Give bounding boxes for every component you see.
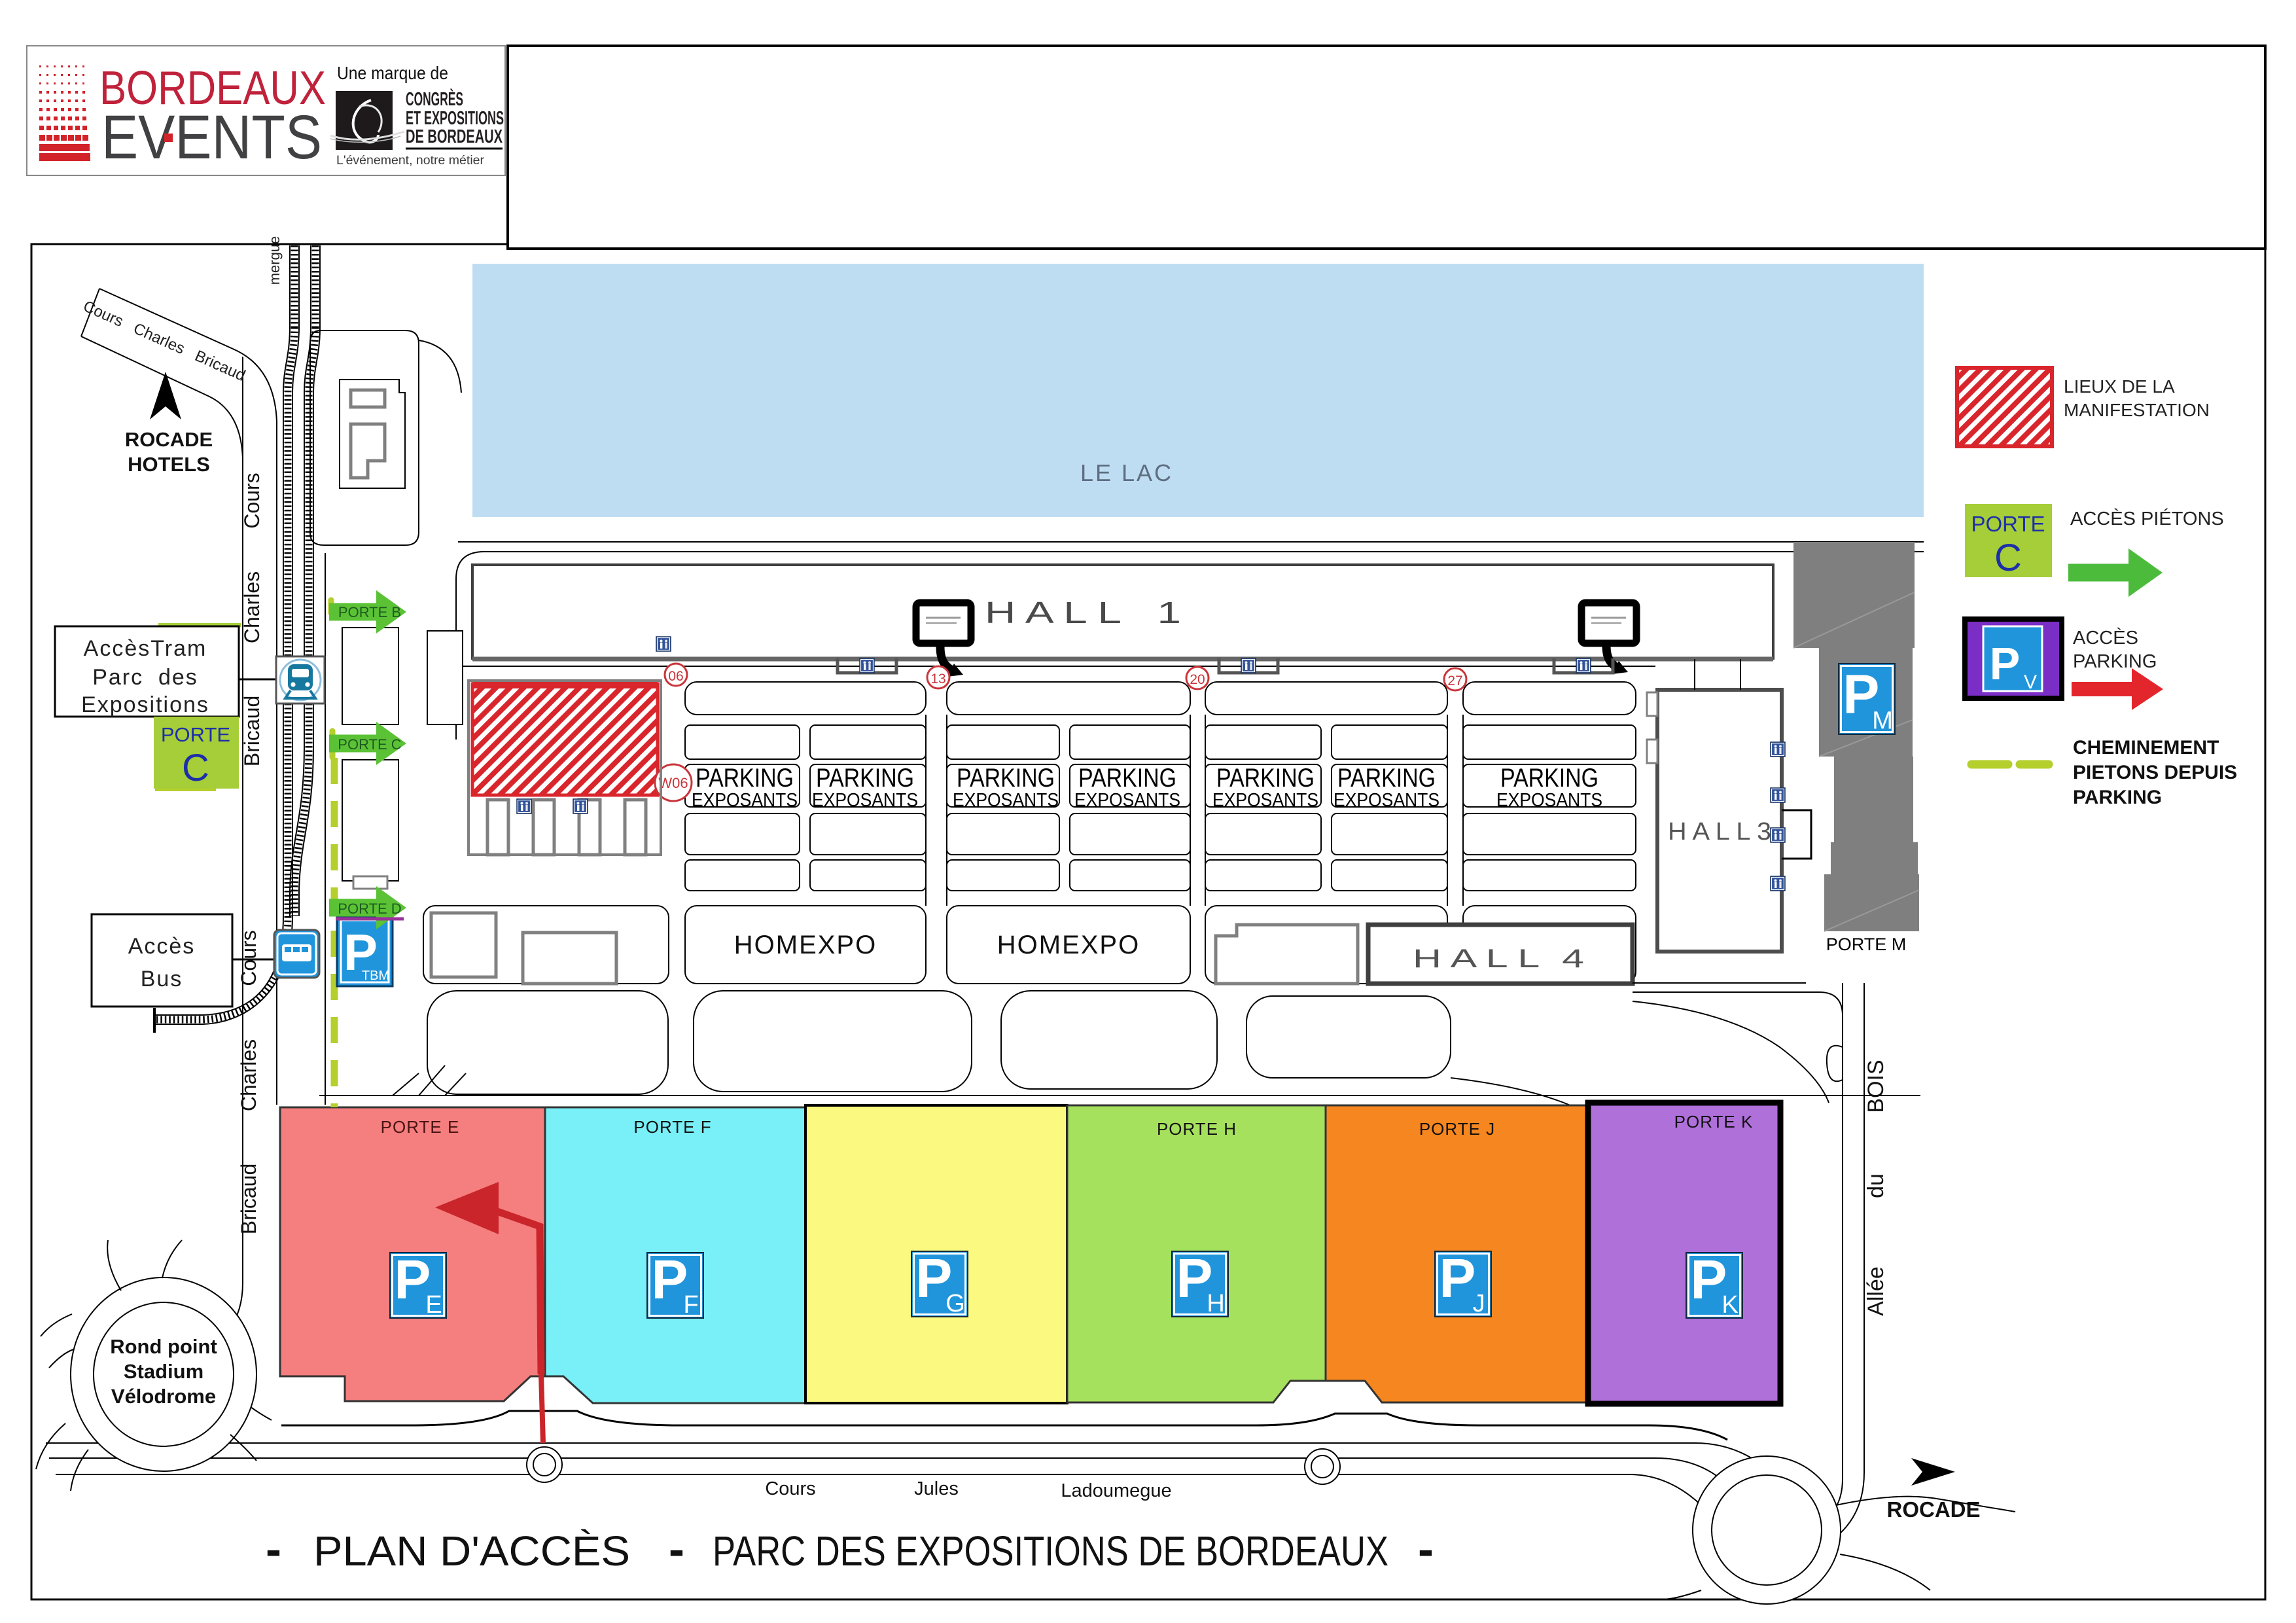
svg-text:PORTE C: PORTE C: [338, 736, 402, 753]
svg-text:06: 06: [668, 669, 683, 684]
svg-text:ACCÈS PIÉTONS: ACCÈS PIÉTONS: [2070, 508, 2224, 529]
svg-text:PARKING: PARKING: [2073, 787, 2162, 808]
svg-text:HOMEXPO: HOMEXPO: [734, 931, 877, 959]
svg-text:L'événement, notre métier: L'événement, notre métier: [336, 154, 485, 168]
svg-text:PORTE M: PORTE M: [1826, 935, 1907, 954]
svg-text:Charles: Charles: [240, 571, 264, 643]
svg-text:W06: W06: [658, 775, 688, 791]
svg-text:F: F: [683, 1291, 698, 1319]
svg-text:PARKING: PARKING: [2073, 651, 2157, 672]
svg-text:27: 27: [1447, 673, 1462, 688]
svg-text:PARKING: PARKING: [816, 764, 914, 793]
svg-text:Bricaud: Bricaud: [240, 696, 264, 767]
svg-text:EXPOSANTS: EXPOSANTS: [1212, 790, 1318, 811]
svg-text:C: C: [1994, 537, 2022, 579]
svg-text:H A L L 4: H A L L 4: [1413, 944, 1584, 973]
svg-text:H A L L 1: H A L L 1: [985, 596, 1181, 630]
svg-text:PORTE J: PORTE J: [1419, 1119, 1495, 1139]
svg-text:EXPOSANTS: EXPOSANTS: [1496, 790, 1602, 811]
svg-text:PORTE: PORTE: [161, 723, 230, 746]
svg-text:CONGRÈS: CONGRÈS: [406, 88, 463, 110]
svg-text:13: 13: [930, 671, 945, 687]
svg-text:AccèsTram: AccèsTram: [84, 636, 207, 661]
svg-text:K: K: [1722, 1291, 1738, 1319]
svg-text:Cours: Cours: [765, 1478, 815, 1499]
svg-text:PIETONS DEPUIS: PIETONS DEPUIS: [2073, 762, 2237, 783]
svg-text:EXPOSANTS: EXPOSANTS: [692, 790, 798, 811]
svg-text:du: du: [1863, 1173, 1888, 1198]
svg-text:Expositions: Expositions: [81, 692, 209, 717]
svg-text:Cours: Cours: [237, 930, 260, 986]
svg-text:EXPOSANTS: EXPOSANTS: [812, 790, 918, 811]
svg-text:PORTE: PORTE: [1971, 512, 2045, 536]
svg-text:EXPOSANTS: EXPOSANTS: [1074, 790, 1180, 811]
svg-text:Charles: Charles: [237, 1039, 260, 1111]
svg-text:MANIFESTATION: MANIFESTATION: [2064, 400, 2210, 420]
svg-text:V: V: [2024, 671, 2037, 693]
svg-text:H A L L 3: H A L L 3: [1668, 818, 1771, 846]
svg-text:PLAN D'ACCÈS: PLAN D'ACCÈS: [313, 1527, 630, 1575]
svg-text:Allée: Allée: [1863, 1266, 1888, 1316]
svg-text:Une marque de: Une marque de: [337, 63, 448, 83]
svg-text:Parc des: Parc des: [92, 665, 198, 690]
svg-text:Bus: Bus: [141, 967, 183, 991]
svg-text:PORTE B: PORTE B: [338, 604, 401, 620]
svg-text:PORTE K: PORTE K: [1674, 1112, 1754, 1132]
svg-text:PARKING: PARKING: [1078, 764, 1176, 793]
svg-text:EVENTS: EVENTS: [101, 103, 322, 172]
svg-text:ROCADE: ROCADE: [125, 428, 213, 451]
svg-text:J: J: [1473, 1290, 1485, 1317]
svg-text:Cours: Cours: [240, 473, 264, 528]
svg-text:PORTE H: PORTE H: [1157, 1119, 1237, 1139]
svg-text:E: E: [425, 1291, 442, 1319]
svg-text:PARKING: PARKING: [1216, 764, 1315, 793]
svg-text:M: M: [1872, 707, 1893, 734]
svg-text:Stadium: Stadium: [124, 1360, 203, 1383]
svg-text:DE BORDEAUX: DE BORDEAUX: [406, 126, 503, 147]
svg-text:Ladoumegue: Ladoumegue: [1061, 1480, 1171, 1501]
svg-text:Accès: Accès: [128, 934, 196, 959]
svg-text:PARKING: PARKING: [1337, 764, 1436, 793]
svg-text:EXPOSANTS: EXPOSANTS: [1333, 790, 1439, 811]
svg-text:Bricaud: Bricaud: [237, 1164, 260, 1235]
svg-text:PARKING: PARKING: [1500, 764, 1598, 793]
svg-text:mergue: mergue: [266, 236, 283, 285]
svg-text:TBM: TBM: [362, 969, 389, 983]
svg-text:Jules: Jules: [914, 1478, 959, 1499]
svg-text:-: -: [266, 1524, 281, 1576]
svg-text:H: H: [1207, 1290, 1224, 1317]
svg-text:PORTE F: PORTE F: [633, 1117, 711, 1137]
svg-text:Vélodrome: Vélodrome: [111, 1385, 216, 1408]
svg-text:G: G: [945, 1290, 965, 1317]
svg-text:PARC DES EXPOSITIONS DE BORDEA: PARC DES EXPOSITIONS DE BORDEAUX: [713, 1527, 1388, 1575]
svg-text:PARKING: PARKING: [696, 764, 794, 793]
svg-text:CHEMINEMENT: CHEMINEMENT: [2073, 737, 2219, 758]
svg-text:PORTE E: PORTE E: [381, 1117, 460, 1137]
svg-text:BOIS: BOIS: [1863, 1060, 1888, 1113]
svg-text:-: -: [1418, 1524, 1434, 1576]
svg-text:EXPOSANTS: EXPOSANTS: [953, 790, 1059, 811]
svg-text:LIEUX DE LA: LIEUX DE LA: [2064, 376, 2175, 397]
svg-text:ROCADE: ROCADE: [1886, 1497, 1980, 1522]
svg-text:20: 20: [1190, 672, 1205, 687]
svg-text:P: P: [1990, 638, 2021, 689]
svg-text:P: P: [651, 1249, 688, 1310]
svg-text:PARKING: PARKING: [957, 764, 1055, 793]
svg-text:LE LAC: LE LAC: [1080, 459, 1173, 486]
svg-text:HOTELS: HOTELS: [128, 453, 210, 476]
svg-text:-: -: [669, 1524, 684, 1576]
svg-text:Rond point: Rond point: [110, 1335, 217, 1358]
svg-text:ACCÈS: ACCÈS: [2073, 627, 2138, 649]
svg-text:P: P: [1439, 1247, 1475, 1309]
svg-text:PORTE D: PORTE D: [338, 901, 401, 917]
svg-text:HOMEXPO: HOMEXPO: [997, 931, 1140, 959]
svg-text:C: C: [182, 747, 209, 789]
